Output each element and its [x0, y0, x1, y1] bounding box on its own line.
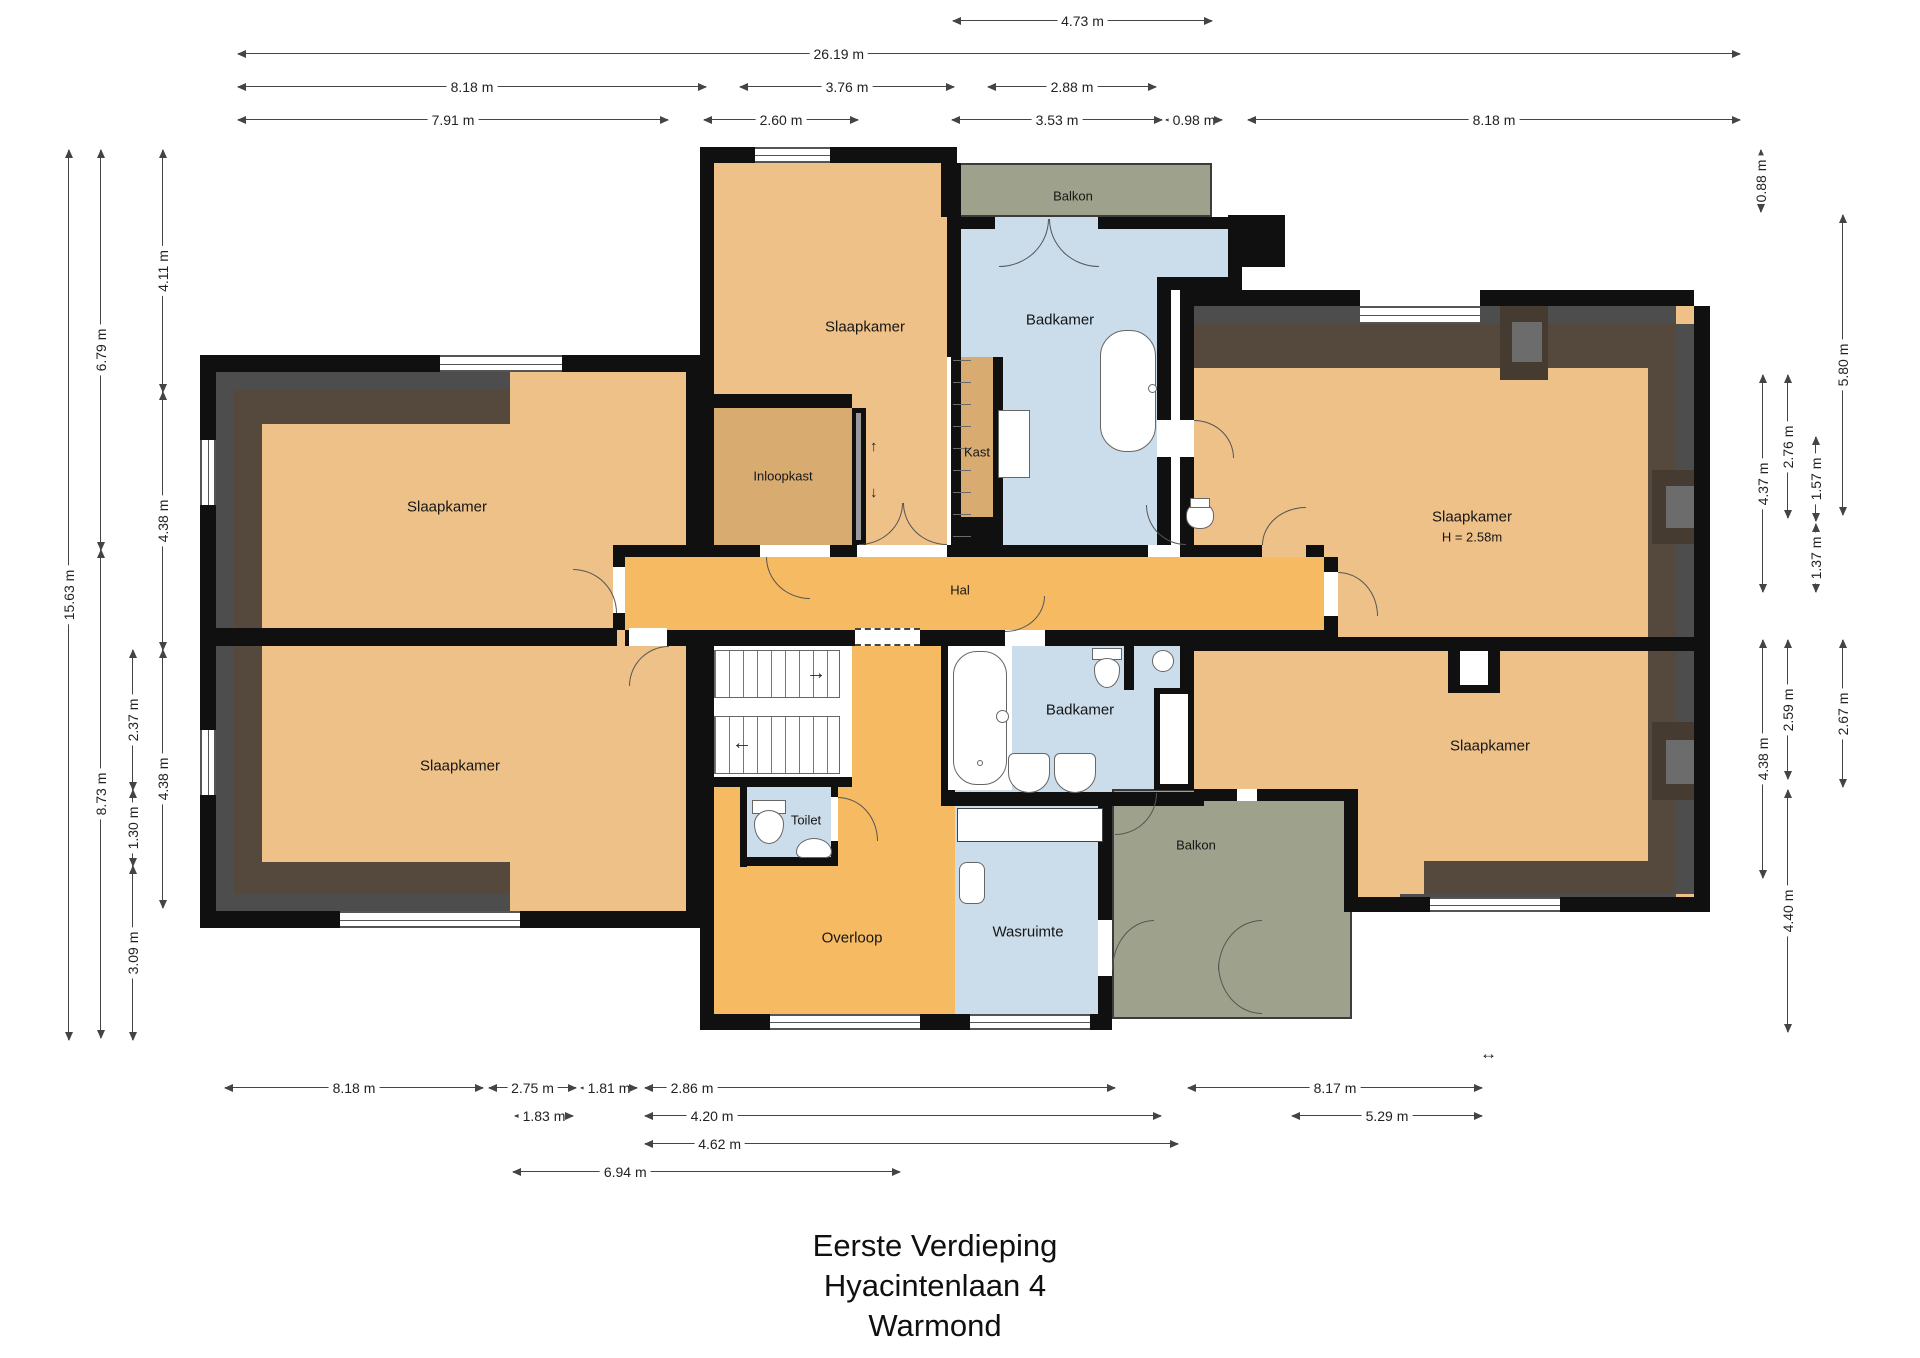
window [755, 147, 830, 163]
dimension: 3.76 m [740, 86, 954, 87]
wall-segment [1180, 290, 1360, 306]
opening [629, 628, 667, 646]
window [1430, 897, 1560, 912]
dimension: 3.09 m [132, 866, 133, 1040]
dimension: 4.20 m [645, 1115, 1161, 1116]
dimension: 1.83 m [515, 1115, 573, 1116]
toilet [1190, 498, 1210, 508]
opening [831, 797, 838, 841]
wall-segment [1324, 557, 1338, 572]
bathtub-faucet [1148, 384, 1157, 393]
dimension-label: 26.19 m [810, 46, 869, 62]
roof-eaves-band [216, 894, 510, 912]
dimension-label: 4.73 m [1057, 13, 1108, 29]
wall-segment [200, 355, 216, 440]
dimension: 26.19 m [238, 53, 1740, 54]
window [340, 911, 520, 928]
sink [959, 862, 985, 904]
dimension: 4.38 m [162, 650, 163, 908]
dimension-label: 2.67 m [1835, 688, 1851, 739]
dimension-label: 8.18 m [329, 1080, 380, 1096]
wall-segment [1180, 290, 1194, 420]
wall-segment [1560, 897, 1694, 912]
wall-segment [686, 630, 700, 928]
dimension-label: 0.98 m [1169, 112, 1220, 128]
floorplan-page: → ← [0, 0, 1920, 1358]
sink [796, 838, 832, 858]
opening [1098, 920, 1112, 976]
bathtub-drain [977, 760, 983, 766]
dimension: 15.63 m [68, 150, 69, 1040]
wall-segment [1124, 646, 1134, 690]
window [770, 1014, 920, 1030]
dimension: 5.29 m [1292, 1115, 1482, 1116]
room-label-slaapkamer-top-left: Slaapkamer [407, 499, 487, 516]
wall-segment [957, 217, 995, 229]
wall-segment [1344, 897, 1430, 912]
wall-segment [920, 630, 1005, 646]
dimension-label: 1.30 m [125, 803, 141, 854]
dimension: 7.91 m [238, 119, 668, 120]
wall-segment [714, 394, 852, 408]
dimension: 2.37 m [132, 650, 133, 790]
wall-segment [947, 545, 1148, 557]
dimension: 4.73 m [953, 20, 1212, 21]
wall-segment [520, 911, 700, 928]
wall-segment [1694, 306, 1710, 912]
room-label-ceiling-height: H = 2.58m [1442, 530, 1502, 545]
dimension-label: 7.91 m [428, 112, 479, 128]
dimension-label: 1.83 m [519, 1108, 570, 1124]
plan-shape [1512, 322, 1542, 362]
dimension: 2.88 m [988, 86, 1156, 87]
dimension: 6.94 m [513, 1171, 900, 1172]
wall-segment [1098, 976, 1112, 1014]
dimension-label: 2.75 m [507, 1080, 558, 1096]
bathtub-faucet [996, 710, 1009, 723]
dimension: 1.57 m [1815, 437, 1816, 521]
wall-segment [625, 545, 760, 557]
wall-segment [700, 147, 714, 557]
wall-segment [700, 1014, 770, 1030]
sink [998, 410, 1030, 478]
wall-segment [1306, 545, 1324, 557]
dimension-label: 1.57 m [1808, 454, 1824, 505]
dimension: 2.75 m [489, 1087, 576, 1088]
dimension-label: 2.60 m [756, 112, 807, 128]
dimension: 1.81 m [581, 1087, 637, 1088]
window [970, 1014, 1090, 1030]
room-label-kast: Kast [964, 445, 990, 460]
floorplan-drawing: → ← [0, 0, 1920, 1358]
wall-segment [740, 787, 747, 867]
wall-segment [200, 505, 216, 730]
room-label-wasruimte: Wasruimte [992, 924, 1063, 941]
plan-title: Eerste Verdieping Hyacintenlaan 4 Warmon… [813, 1226, 1058, 1346]
dimension: 1.30 m [132, 790, 133, 866]
window [200, 730, 216, 795]
wall-segment [1194, 637, 1694, 651]
opening [1157, 420, 1194, 457]
wall-segment [740, 857, 838, 866]
plan-title-line2: Hyacintenlaan 4 [813, 1266, 1058, 1306]
wall-segment [200, 911, 340, 928]
wall-segment [941, 163, 957, 217]
wall-segment [1228, 215, 1285, 267]
room-label-slaapkamer-bottom-left: Slaapkamer [420, 758, 500, 775]
dimension-label: 3.53 m [1032, 112, 1083, 128]
wall-segment [200, 355, 440, 372]
dimension-label: 8.18 m [1469, 112, 1520, 128]
dimension-label: 2.37 m [125, 695, 141, 746]
wall-segment [1090, 1014, 1112, 1030]
dimension: 0.88 m [1760, 150, 1761, 212]
dimension: 4.38 m [1762, 640, 1763, 878]
dimension-label: 15.63 m [61, 566, 77, 625]
wall-segment [200, 795, 216, 928]
bathroom-niche [1160, 694, 1188, 784]
plan-title-line1: Eerste Verdieping [813, 1226, 1058, 1266]
dimension-label: 8.18 m [447, 79, 498, 95]
wall-segment [831, 841, 838, 857]
dimension-label: 4.38 m [155, 496, 171, 547]
dimension: 4.37 m [1762, 375, 1763, 592]
dimension-label: 1.81 m [584, 1080, 635, 1096]
wall-segment [1157, 277, 1242, 290]
dimension-label: 4.37 m [1755, 458, 1771, 509]
dimension: 4.11 m [162, 150, 163, 392]
room-label-inloopkast: Inloopkast [753, 469, 812, 484]
dimension-label: 2.76 m [1780, 421, 1796, 472]
dimension: 8.17 m [1188, 1087, 1482, 1088]
dimension-label: 4.38 m [155, 754, 171, 805]
room-label-slaapkamer-bottom-right: Slaapkamer [1450, 738, 1530, 755]
room-label-badkamer-bottom: Badkamer [1046, 702, 1114, 719]
stair-direction-arrow: → [806, 662, 826, 685]
wall-segment [714, 777, 852, 787]
dimension: 4.38 m [162, 392, 163, 650]
stair-direction-arrow: ← [732, 732, 752, 755]
dimension-label: 4.62 m [694, 1136, 745, 1152]
dimension: 2.60 m [704, 119, 858, 120]
dimension: 8.18 m [225, 1087, 483, 1088]
wall-segment [941, 792, 1204, 806]
room-label-hal: Hal [950, 583, 970, 598]
wall-segment [1324, 616, 1338, 637]
dimension-label: 0.88 m [1753, 156, 1769, 207]
wall-segment [700, 646, 714, 1014]
wall-segment [1098, 217, 1228, 229]
dimension: 2.59 m [1787, 640, 1788, 779]
room-label-slaapkamer-top-right: Slaapkamer [1432, 509, 1512, 526]
wall-segment [613, 613, 625, 630]
ceiling-light [1152, 650, 1174, 672]
roof-eaves-band [234, 862, 510, 894]
dimension-label: 6.79 m [93, 325, 109, 376]
chimney-niche [1460, 651, 1488, 685]
room-label-badkamer-top: Badkamer [1026, 312, 1094, 329]
wall-segment [686, 355, 700, 557]
window [1360, 306, 1480, 324]
dimension-label: 4.20 m [687, 1108, 738, 1124]
dimension-label: 2.86 m [667, 1080, 718, 1096]
dimension-label: 3.76 m [822, 79, 873, 95]
dimension: 2.76 m [1787, 375, 1788, 518]
dimension: 1.37 m [1815, 524, 1816, 592]
opening [1237, 789, 1257, 801]
roof-eaves-band [216, 372, 510, 390]
scale-marker-icon: ↔ [1480, 1044, 1497, 1064]
wall-segment [216, 628, 617, 646]
dimension: 5.80 m [1842, 215, 1843, 515]
opening [1324, 572, 1338, 616]
wall-segment [1188, 545, 1262, 557]
dimension: 8.18 m [1248, 119, 1740, 120]
dimension-label: 2.88 m [1047, 79, 1098, 95]
dimension: 8.18 m [238, 86, 706, 87]
open-passage [855, 628, 920, 646]
room-label-balkon-bottom: Balkon [1176, 838, 1216, 853]
wall-segment [830, 545, 857, 557]
dimension: 4.62 m [645, 1143, 1178, 1144]
wall-segment [941, 1014, 970, 1030]
dimension-label: 3.09 m [125, 928, 141, 979]
room-label-toilet: Toilet [791, 813, 821, 828]
roof-eaves-band [1424, 861, 1676, 894]
wall-segment [1257, 789, 1352, 801]
dimension: 4.40 m [1787, 790, 1788, 1032]
dimension-label: 6.94 m [600, 1164, 651, 1180]
dimension-label: 4.38 m [1755, 734, 1771, 785]
direction-arrow-up: ↑ [870, 438, 878, 455]
bathtub [1100, 330, 1156, 452]
window [200, 440, 216, 505]
roof-eaves-band [1194, 324, 1676, 368]
dimension-label: 5.80 m [1835, 340, 1851, 391]
dimension-label: 4.11 m [155, 246, 171, 296]
dimension-label: 5.29 m [1362, 1108, 1413, 1124]
window [440, 355, 562, 372]
wall-segment [613, 545, 625, 567]
dimension-label: 2.59 m [1780, 684, 1796, 735]
plan-title-line3: Warmond [813, 1306, 1058, 1346]
dimension-label: 4.40 m [1780, 886, 1796, 937]
wall-segment [830, 147, 957, 163]
wall-segment [1157, 290, 1171, 420]
laundry-counter [957, 808, 1103, 842]
dimension-label: 1.37 m [1808, 533, 1824, 584]
direction-arrow-down: ↓ [870, 484, 878, 501]
dimension-label: 8.17 m [1310, 1080, 1361, 1096]
wall-segment [831, 787, 838, 797]
room-label-overloop: Overloop [822, 930, 883, 947]
dimension: 3.53 m [952, 119, 1162, 120]
dimension-label: 8.73 m [93, 769, 109, 820]
sink [1008, 753, 1050, 793]
room-label-balkon-top: Balkon [1053, 189, 1093, 204]
dimension: 0.98 m [1166, 119, 1222, 120]
wall-segment [1344, 789, 1358, 899]
roof-eaves-band [1676, 324, 1694, 894]
dimension: 2.86 m [645, 1087, 1115, 1088]
room-label-slaapkamer-top-center: Slaapkamer [825, 319, 905, 336]
dimension: 6.79 m [100, 150, 101, 550]
wall-segment [562, 355, 700, 372]
dimension: 2.67 m [1842, 640, 1843, 787]
sink [1054, 753, 1096, 793]
room-hal [625, 557, 1324, 630]
wall-segment [1480, 290, 1694, 306]
dimension: 8.73 m [100, 550, 101, 1038]
roof-eaves-band [234, 390, 510, 424]
